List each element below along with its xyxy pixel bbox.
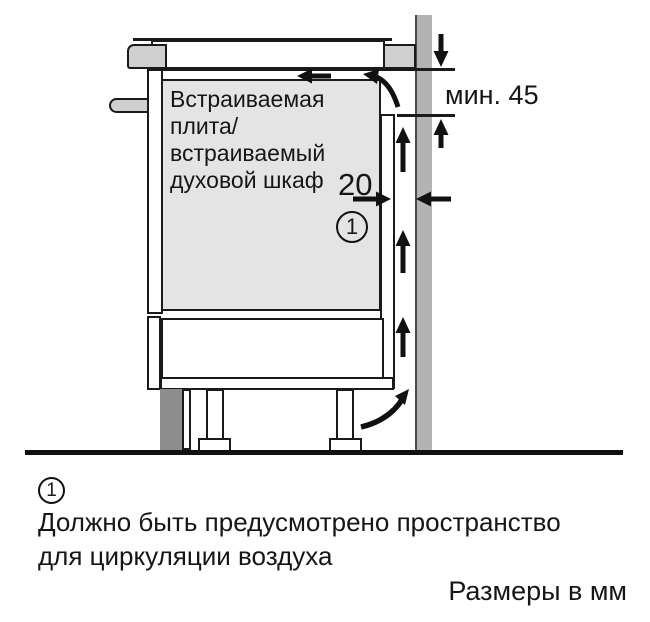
- cooktop-body: [151, 40, 385, 69]
- plinth-panel-edge: [182, 389, 191, 450]
- left-leg: [206, 389, 224, 440]
- airflow-up-arrow-icon: [396, 317, 411, 357]
- footnote-text: Должно быть предусмотрено пространство д…: [38, 505, 618, 573]
- min-clearance-dimension-label: мин. 45: [445, 80, 539, 110]
- wall-section: [415, 15, 432, 451]
- cabinet-base-panel: [160, 377, 394, 390]
- rear-gap-dimension-label: 20: [338, 169, 372, 200]
- dimension-up-arrow-icon: [434, 119, 449, 148]
- cooktop-glass-line: [133, 38, 392, 41]
- airflow-up-arrow-icon: [396, 127, 411, 172]
- footnote-text-line: для циркуляции воздуха: [38, 539, 618, 573]
- appliance-label-line: Встраиваемая: [170, 86, 376, 113]
- plinth-column: [160, 389, 182, 450]
- footnote-text-line: Должно быть предусмотрено пространство: [38, 505, 618, 539]
- dimension-down-arrow-icon: [434, 34, 449, 67]
- clearance-dimension-line: [397, 114, 455, 117]
- right-leg: [336, 389, 354, 440]
- airflow-up-arrow-icon: [396, 230, 411, 273]
- callout-1-badge: 1: [336, 211, 368, 243]
- floor-line: [25, 450, 623, 455]
- appliance-label-line: встраиваемый: [170, 140, 376, 167]
- cooktop-bottom-dimension-line: [150, 68, 455, 71]
- drawer-front-panel: [147, 316, 161, 390]
- airflow-curved-arrow-bottom-icon: [361, 389, 409, 427]
- units-note: Размеры в мм: [448, 576, 627, 607]
- appliance-label-line: плита/: [170, 113, 376, 140]
- installation-diagram-page: Встраиваемая плита/ встраиваемый духовой…: [0, 0, 650, 622]
- cooktop-left-trim: [127, 44, 167, 69]
- cooktop-right-trim: [383, 44, 416, 69]
- footnote-marker-badge: 1: [38, 477, 65, 504]
- drawer-box: [161, 318, 384, 379]
